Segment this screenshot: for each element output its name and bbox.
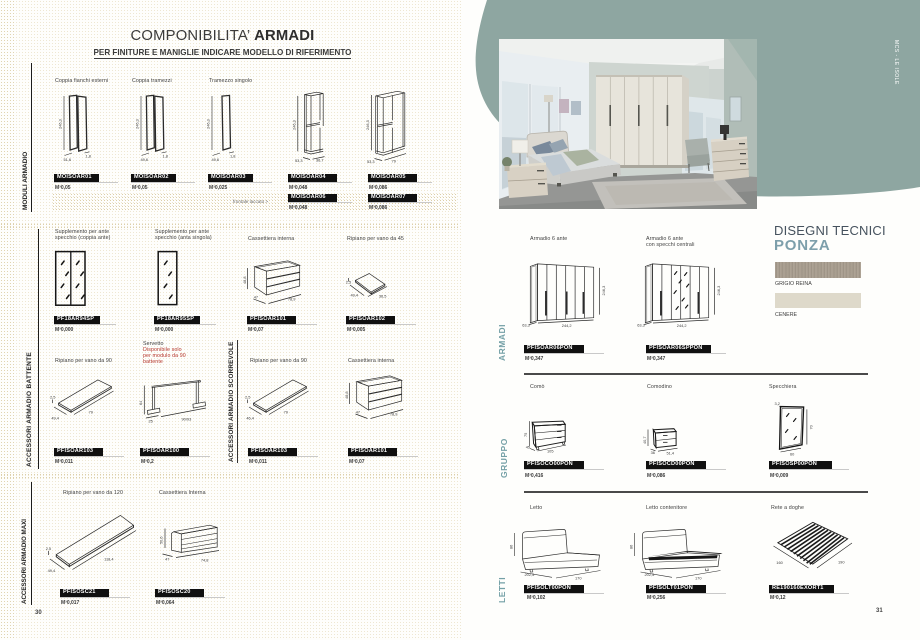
svg-text:246,3: 246,3 xyxy=(58,119,63,129)
svg-text:202,5: 202,5 xyxy=(525,572,535,577)
svg-text:170: 170 xyxy=(575,575,582,580)
svg-text:79: 79 xyxy=(284,409,288,414)
svg-text:53,3: 53,3 xyxy=(295,158,303,163)
svg-text:49,6: 49,6 xyxy=(141,157,149,162)
svg-text:2,5: 2,5 xyxy=(50,395,55,400)
svg-text:1,8: 1,8 xyxy=(230,154,235,159)
svg-text:170: 170 xyxy=(695,575,702,580)
svg-text:51,4: 51,4 xyxy=(667,451,675,456)
svg-text:190: 190 xyxy=(838,560,845,565)
svg-text:246,3: 246,3 xyxy=(601,286,606,296)
svg-text:74,8: 74,8 xyxy=(201,558,209,563)
svg-text:2,5: 2,5 xyxy=(346,280,351,285)
svg-text:36: 36 xyxy=(651,450,655,455)
svg-text:105: 105 xyxy=(547,449,554,454)
svg-text:2,5: 2,5 xyxy=(46,546,51,551)
svg-text:78,9: 78,9 xyxy=(390,412,398,417)
svg-text:50,6: 50,6 xyxy=(159,536,164,544)
svg-text:202,5: 202,5 xyxy=(645,572,655,577)
svg-text:2,5: 2,5 xyxy=(245,395,250,400)
svg-text:36,7: 36,7 xyxy=(316,158,324,163)
svg-text:86: 86 xyxy=(508,545,513,549)
svg-text:246,3: 246,3 xyxy=(135,119,140,129)
svg-text:45: 45 xyxy=(526,445,530,450)
svg-text:118,4: 118,4 xyxy=(104,557,114,562)
svg-text:86: 86 xyxy=(628,545,633,549)
svg-text:1,8: 1,8 xyxy=(163,154,168,159)
svg-text:79: 79 xyxy=(392,159,396,164)
svg-text:53,3: 53,3 xyxy=(367,159,375,164)
svg-text:25: 25 xyxy=(149,419,153,424)
svg-text:246,3: 246,3 xyxy=(716,286,721,296)
svg-text:49,4: 49,4 xyxy=(48,568,56,573)
svg-text:90/93: 90/93 xyxy=(182,417,192,422)
svg-text:63,3: 63,3 xyxy=(522,323,530,328)
svg-text:47: 47 xyxy=(356,410,360,415)
svg-text:49,4: 49,4 xyxy=(51,416,59,421)
svg-text:244,2: 244,2 xyxy=(677,323,687,328)
svg-text:36,5: 36,5 xyxy=(379,294,387,299)
svg-text:46,4: 46,4 xyxy=(246,416,254,421)
svg-text:47: 47 xyxy=(165,557,169,562)
svg-text:1,8: 1,8 xyxy=(86,154,91,159)
svg-text:246,3: 246,3 xyxy=(206,119,211,129)
svg-text:244,2: 244,2 xyxy=(562,323,572,328)
svg-text:78,9: 78,9 xyxy=(288,297,296,302)
svg-text:49,6: 49,6 xyxy=(212,157,220,162)
svg-text:49,4: 49,4 xyxy=(351,293,359,298)
svg-text:63,3: 63,3 xyxy=(637,323,645,328)
svg-text:70: 70 xyxy=(809,424,814,429)
svg-text:48,8: 48,8 xyxy=(344,391,349,399)
svg-text:60: 60 xyxy=(790,452,795,457)
svg-text:3,2: 3,2 xyxy=(775,401,780,406)
svg-text:51,6: 51,6 xyxy=(64,157,72,162)
svg-text:246,3: 246,3 xyxy=(365,120,370,130)
svg-text:47: 47 xyxy=(254,295,258,300)
svg-text:79: 79 xyxy=(89,409,93,414)
svg-text:40,7: 40,7 xyxy=(642,436,647,444)
svg-text:246,3: 246,3 xyxy=(291,120,296,130)
svg-text:48,8: 48,8 xyxy=(242,276,247,284)
svg-text:160: 160 xyxy=(776,560,783,565)
svg-text:75: 75 xyxy=(523,433,528,437)
